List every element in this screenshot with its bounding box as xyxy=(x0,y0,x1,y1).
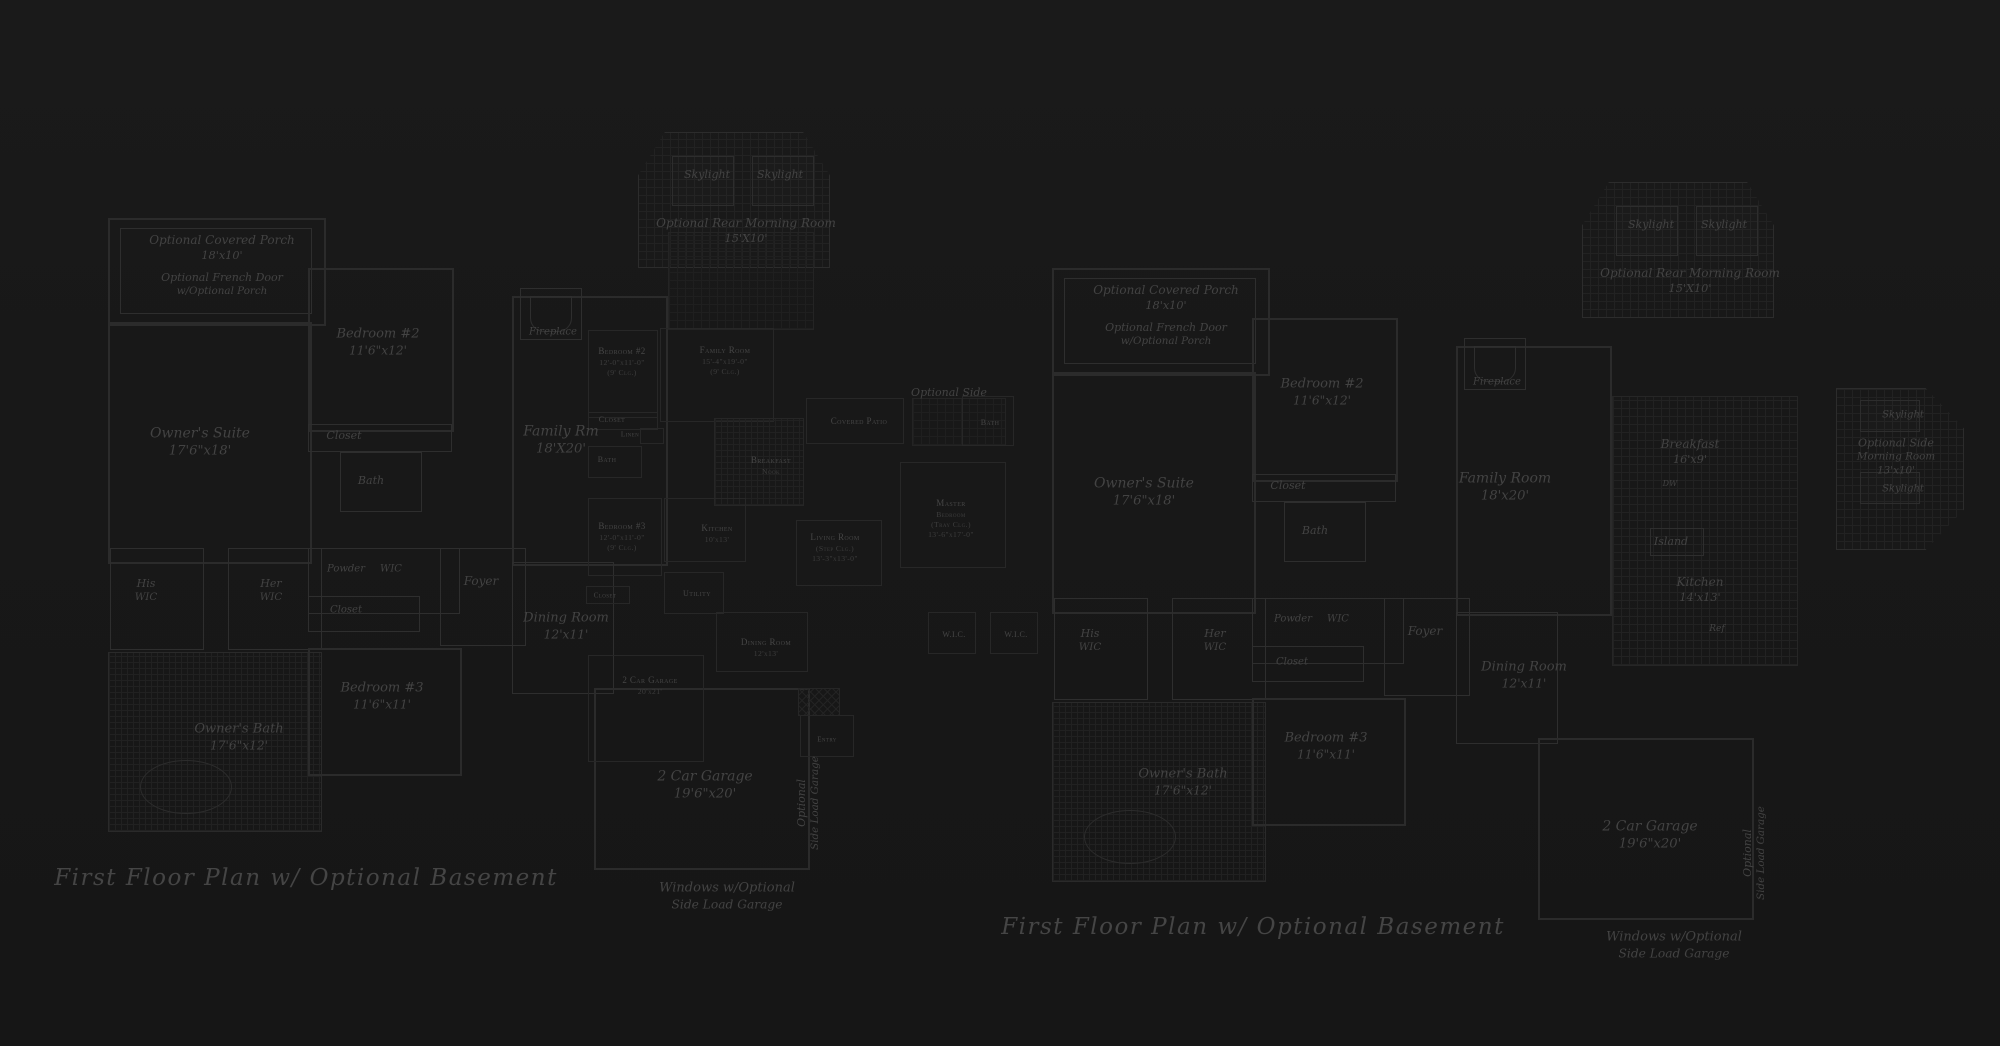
wall xyxy=(1456,612,1558,744)
right-plan-caption: First Floor Plan w/ Optional Basement xyxy=(1001,914,1505,940)
wall xyxy=(308,596,420,632)
wall xyxy=(1052,372,1256,614)
fireplace-symbol xyxy=(530,296,572,332)
tile-grid xyxy=(668,232,814,330)
wall xyxy=(588,498,662,576)
windows-note-label: Windows w/OptionalSide Load Garage xyxy=(1606,930,1742,963)
wall xyxy=(664,498,746,562)
wall xyxy=(108,322,312,564)
hatch-area xyxy=(798,688,840,716)
wall xyxy=(1252,646,1364,682)
skylight-panel xyxy=(672,156,734,206)
wall xyxy=(800,715,854,757)
wall xyxy=(664,572,724,614)
left-plan-caption: First Floor Plan w/ Optional Basement xyxy=(54,865,558,891)
wall xyxy=(962,396,1014,446)
skylight-panel xyxy=(752,156,814,206)
wall xyxy=(1252,474,1396,502)
wall xyxy=(640,428,664,444)
wall xyxy=(1538,738,1754,920)
wall xyxy=(308,424,452,452)
wall xyxy=(586,586,630,604)
wall xyxy=(340,452,422,512)
wall xyxy=(588,330,658,418)
wall xyxy=(1252,698,1406,826)
wall xyxy=(928,612,976,654)
wall xyxy=(588,655,704,762)
wall xyxy=(796,520,882,586)
skylight-panel xyxy=(1860,400,1920,432)
bathtub xyxy=(140,760,232,814)
windows-note-label: Windows w/OptionalSide Load Garage xyxy=(659,881,795,914)
skylight-panel xyxy=(1696,206,1758,256)
wall xyxy=(900,462,1006,568)
bathtub xyxy=(1084,810,1176,864)
wall xyxy=(308,648,462,776)
wall xyxy=(110,548,204,650)
wall xyxy=(120,228,312,314)
skylight-panel xyxy=(1860,472,1920,504)
skylight-panel xyxy=(1616,206,1678,256)
wall xyxy=(1054,598,1148,700)
wall xyxy=(990,612,1038,654)
kitchen-tile-grid xyxy=(1612,396,1798,666)
wall xyxy=(1252,318,1398,482)
wall xyxy=(1064,278,1256,364)
floor-plan-canvas: Optional Covered Porch18'x10'Optional Fr… xyxy=(0,0,2000,1046)
wall xyxy=(588,446,642,478)
wall xyxy=(1284,502,1366,562)
kitchen-island xyxy=(1650,528,1704,556)
fireplace-symbol xyxy=(1474,346,1516,382)
wall xyxy=(660,328,774,422)
wall xyxy=(806,398,904,444)
wall xyxy=(716,612,808,672)
tile-grid xyxy=(714,418,804,506)
wall xyxy=(308,268,454,432)
